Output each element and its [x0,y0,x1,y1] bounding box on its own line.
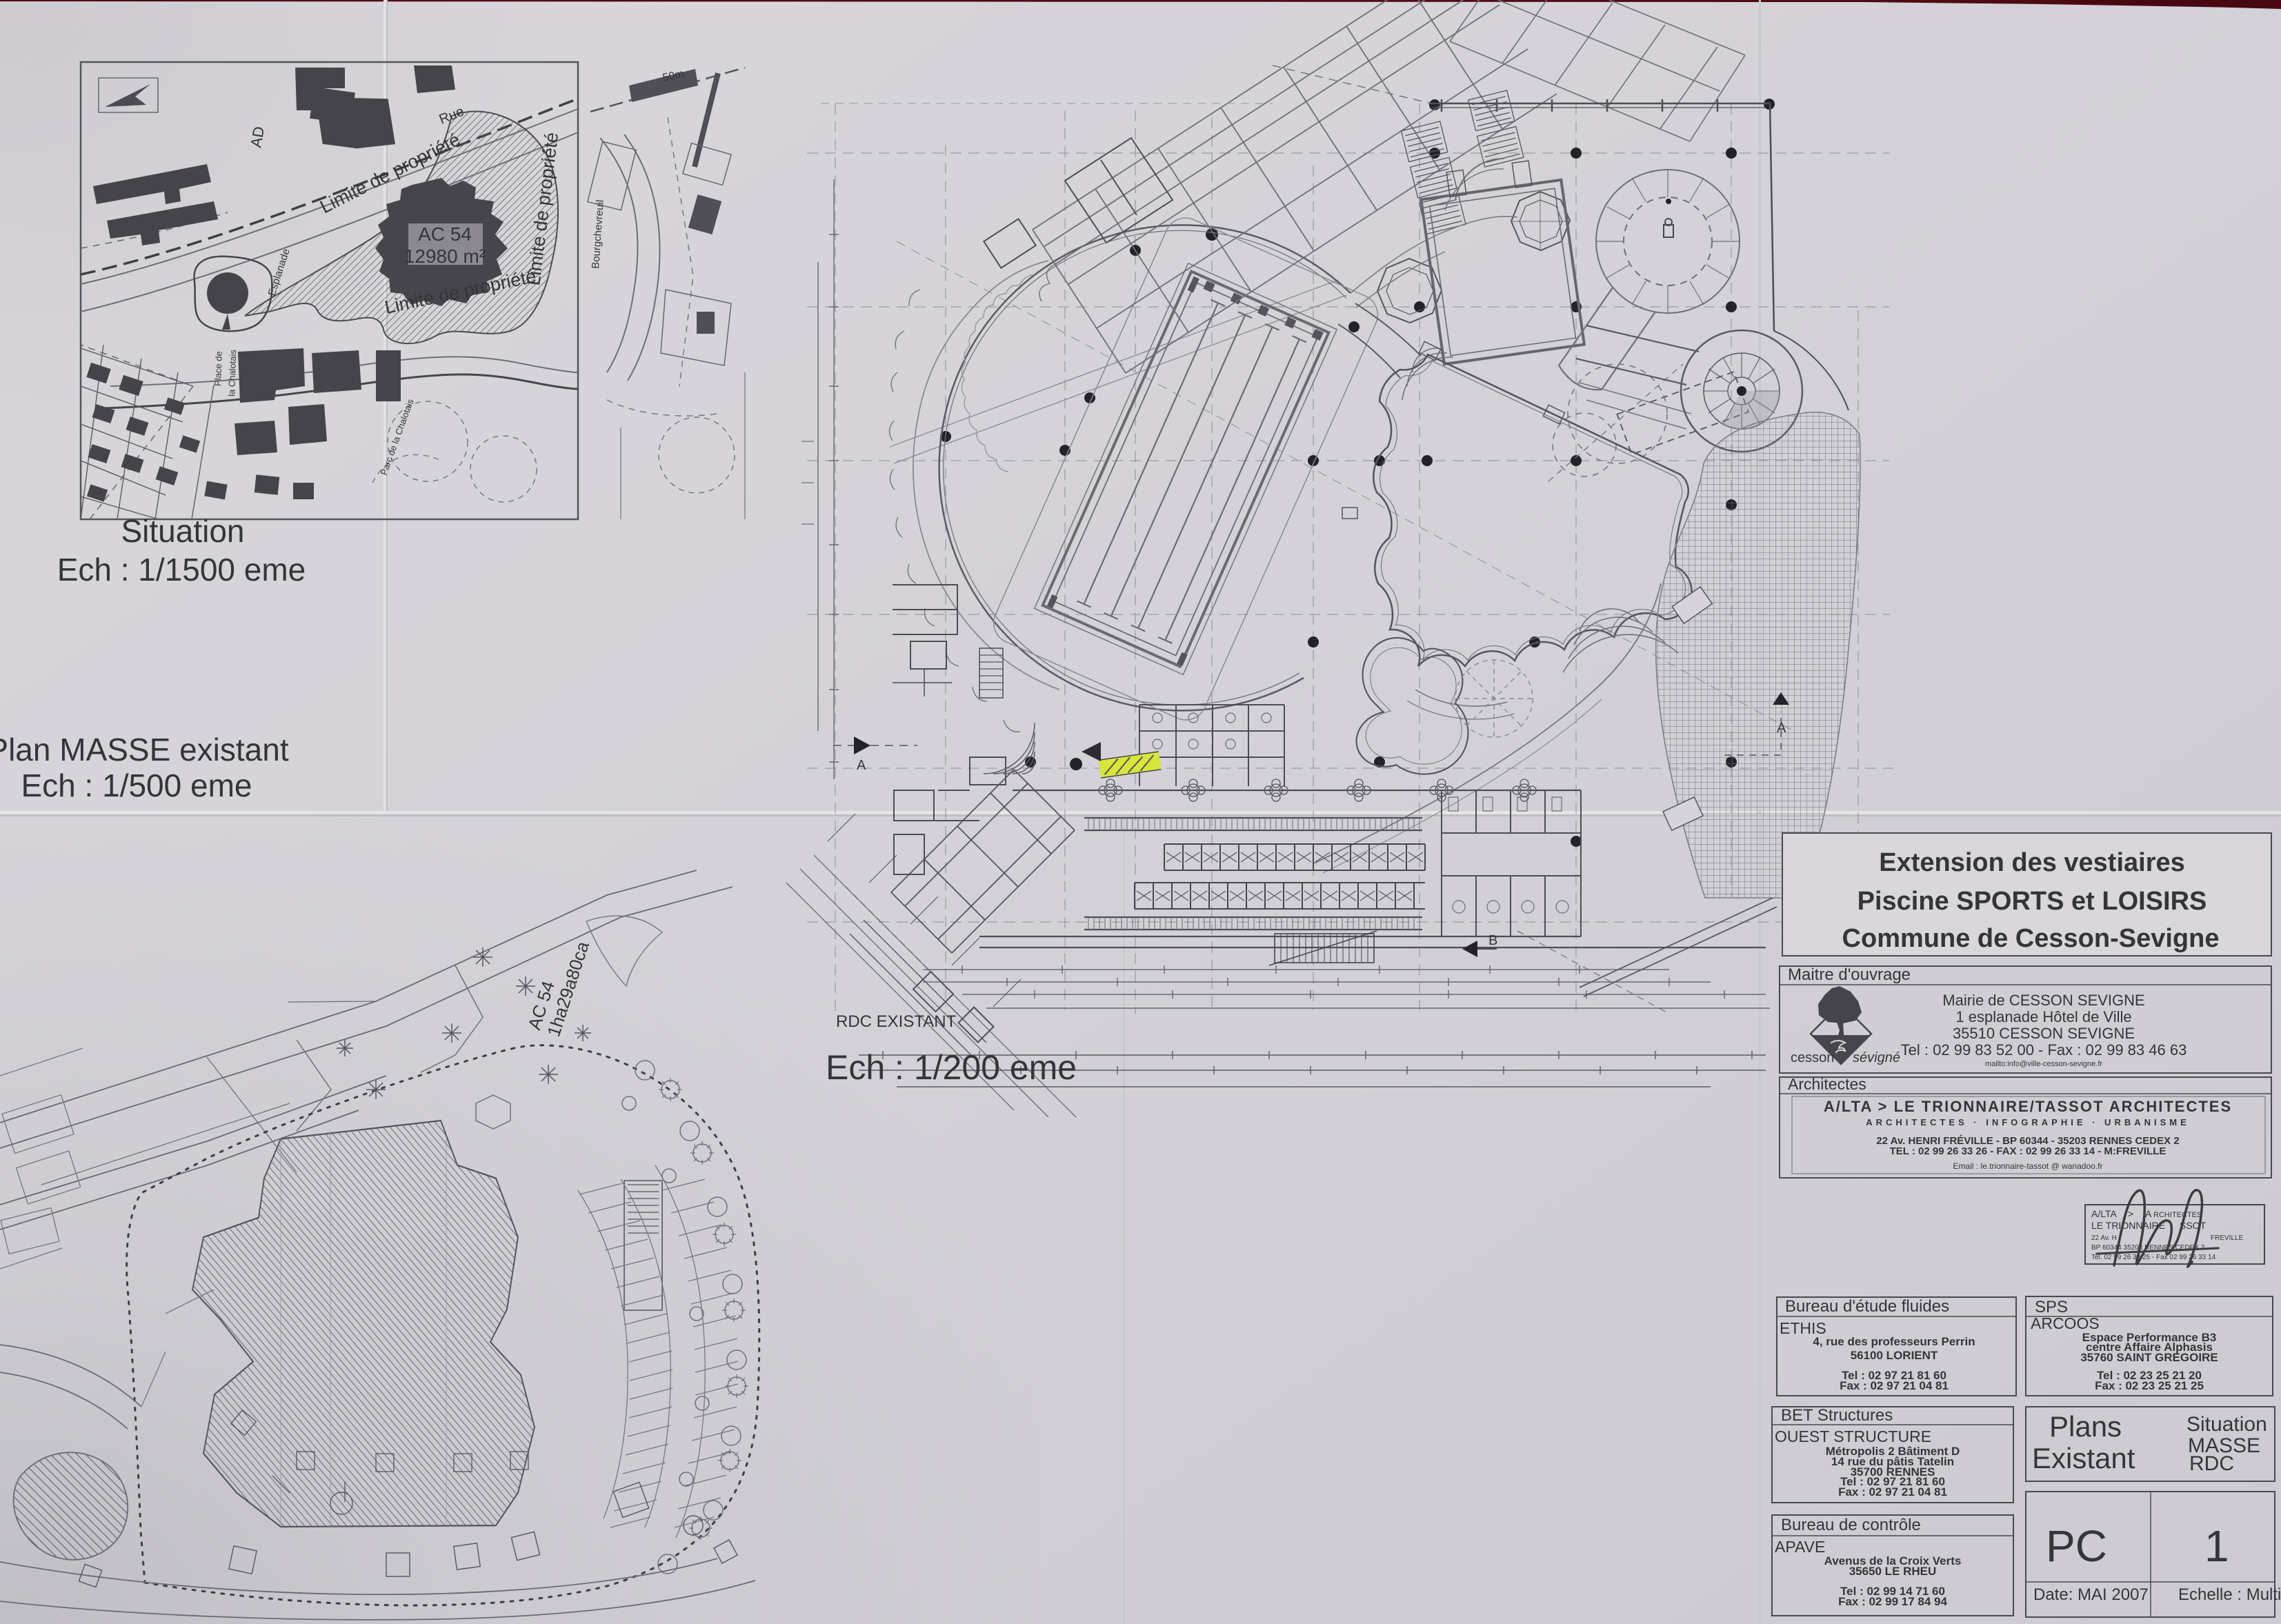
svg-text:PC: PC [2046,1521,2107,1571]
svg-text:A/LTA: A/LTA [2091,1208,2117,1219]
svg-text:1: 1 [2204,1521,2229,1571]
svg-text:>: > [2128,1208,2133,1219]
svg-text:FREVILLE: FREVILLE [2211,1234,2244,1242]
svg-text:35510 CESSON SEVIGNE: 35510 CESSON SEVIGNE [1953,1025,2135,1042]
svg-text:4, rue des professeurs Perrin: 4, rue des professeurs Perrin [1813,1335,1975,1348]
svg-text:Mairie de CESSON SEVIGNE: Mairie de CESSON SEVIGNE [1942,992,2144,1009]
svg-text:APAVE: APAVE [1775,1538,1825,1556]
svg-text:Bureau d'étude fluides: Bureau d'étude fluides [1785,1297,1949,1316]
svg-text:35760 SAINT GREGOIRE: 35760 SAINT GREGOIRE [2080,1351,2218,1364]
svg-text:35650 LE RHEU: 35650 LE RHEU [1849,1565,1937,1578]
svg-text:Date: MAI 2007: Date: MAI 2007 [2033,1585,2149,1604]
svg-text:RCHITECTES: RCHITECTES [2153,1211,2202,1219]
svg-text:56100 LORIENT: 56100 LORIENT [1851,1349,1938,1362]
svg-text:BET Structures: BET Structures [1781,1406,1893,1425]
svg-text:1 esplanade Hôtel de Ville: 1 esplanade Hôtel de Ville [1955,1008,2131,1025]
svg-text:Situation: Situation [2187,1413,2267,1436]
svg-text:Ech : 1/500 eme: Ech : 1/500 eme [21,768,252,803]
svg-text:Ech : 1/1500 eme: Ech : 1/1500 eme [57,552,306,588]
svg-text:A: A [2145,1208,2152,1219]
svg-text:la Chalotais: la Chalotais [226,349,238,397]
svg-text:12980 m²: 12980 m² [404,245,486,267]
svg-text:Fax : 02 97 21 04 81: Fax : 02 97 21 04 81 [1840,1379,1949,1392]
svg-text:Fax : 02 97 21 04 81: Fax : 02 97 21 04 81 [1838,1485,1947,1498]
svg-text:Piscine SPORTS et LOISIRS: Piscine SPORTS et LOISIRS [1857,887,2207,916]
svg-text:OUEST STRUCTURE: OUEST STRUCTURE [1775,1427,1931,1445]
svg-text:A: A [857,758,866,773]
svg-text:Maitre d'ouvrage: Maitre d'ouvrage [1788,965,1911,984]
svg-text:Commune de Cesson-Sevigne: Commune de Cesson-Sevigne [1842,924,2220,953]
svg-text:Email : le.trionnaire-tassot @: Email : le.trionnaire-tassot @ wanadoo.f… [1953,1161,2103,1171]
svg-text:ARCOOS: ARCOOS [2031,1314,2100,1332]
svg-text:Place de: Place de [212,351,224,386]
svg-text:ARCHITECTES · INFOGRAPHIE · UR: ARCHITECTES · INFOGRAPHIE · URBANISME [1866,1117,2190,1127]
svg-text:RDC: RDC [2189,1452,2234,1475]
svg-text:Fax : 02 23 25 21 25: Fax : 02 23 25 21 25 [2095,1379,2204,1392]
svg-text:mailto:info@ville-cesson-sevig: mailto:info@ville-cesson-sevigne.fr [1985,1060,2102,1068]
svg-text:Extension des vestiaires: Extension des vestiaires [1879,848,2185,877]
svg-text:A: A [1777,721,1786,736]
svg-text:Tel : 02 99 83 52 00 - Fax : 0: Tel : 02 99 83 52 00 - Fax : 02 99 83 46… [1901,1041,2187,1059]
svg-text:SPS: SPS [2035,1298,2068,1316]
svg-text:cesson: cesson [1791,1050,1834,1065]
svg-text:A/LTA > LE TRIONNAIRE/TASSOT A: A/LTA > LE TRIONNAIRE/TASSOT ARCHITECTES [1824,1098,2232,1115]
svg-text:Plans: Plans [2049,1410,2122,1443]
svg-text:Fax : 02 99 17 84 94: Fax : 02 99 17 84 94 [1838,1595,1947,1608]
svg-text:LE TRIONNAIRE: LE TRIONNAIRE [2091,1220,2165,1231]
svg-text:Existant: Existant [2032,1442,2135,1474]
svg-text:Echelle : Multi: Echelle : Multi [2178,1585,2281,1604]
svg-text:AC 54: AC 54 [418,223,472,245]
svg-text:B: B [1488,933,1497,948]
svg-text:Architectes: Architectes [1788,1075,1866,1093]
svg-text:Situation: Situation [121,513,244,549]
svg-text:RDC EXISTANT: RDC EXISTANT [836,1012,957,1031]
svg-text:AD: AD [247,125,268,148]
svg-text:TEL : 02 99 26 33 26 - FAX : 0: TEL : 02 99 26 33 26 - FAX : 02 99 26 33… [1890,1145,2167,1157]
svg-text:Tel. 02 99 26 33 25 - Fax 02 9: Tel. 02 99 26 33 25 - Fax 02 99 26 33 14 [2091,1254,2216,1261]
svg-text:22 Av. H: 22 Av. H [2091,1234,2117,1242]
svg-text:Plan MASSE existant: Plan MASSE existant [0,732,289,768]
svg-text:Bureau de contrôle: Bureau de contrôle [1781,1516,1921,1534]
svg-text:sévigné: sévigné [1853,1050,1900,1065]
svg-text:Ech : 1/200 eme: Ech : 1/200 eme [826,1048,1077,1087]
